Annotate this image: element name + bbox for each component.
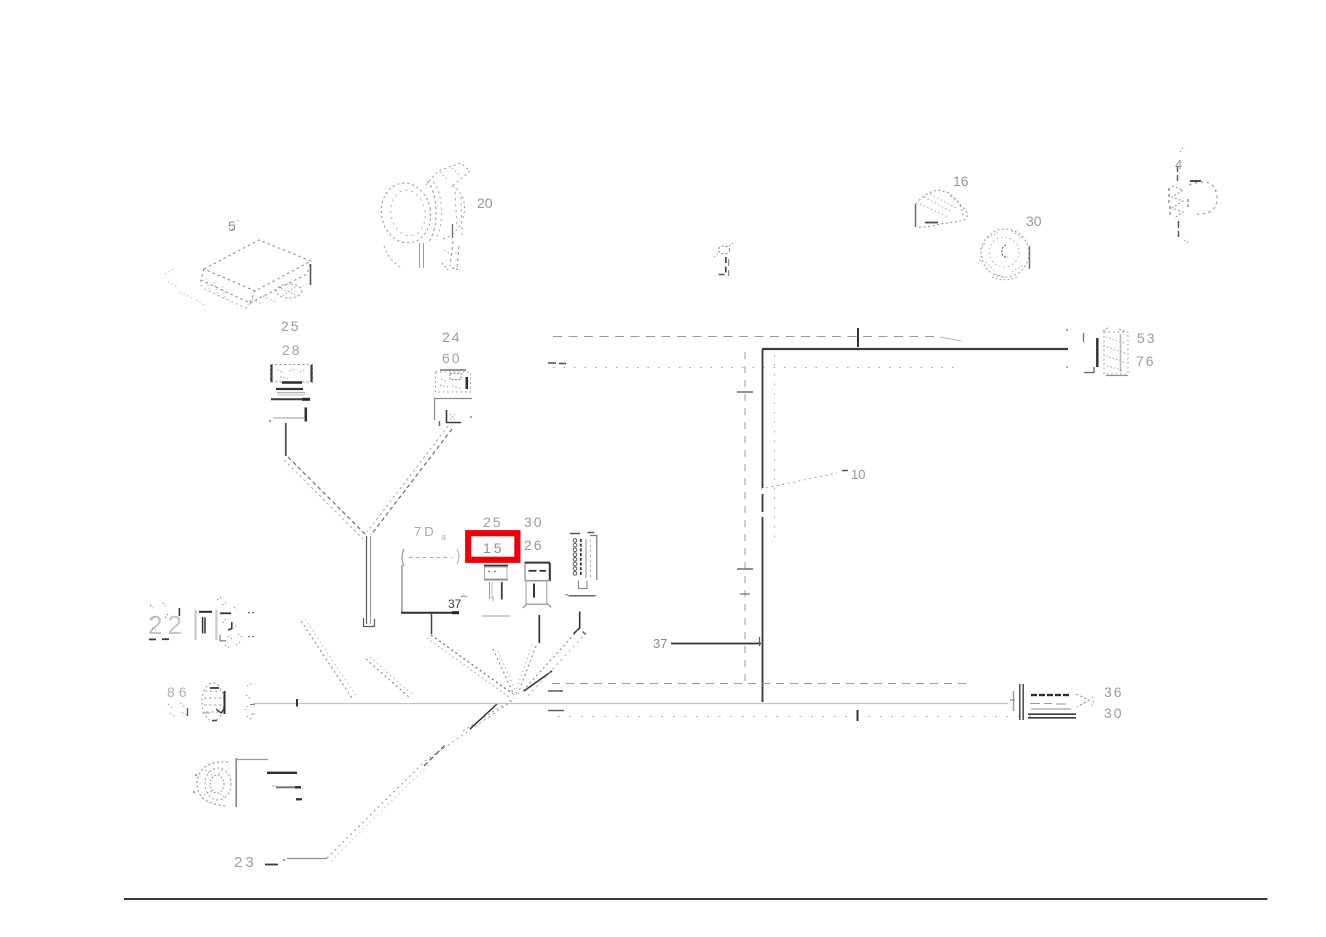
svg-text:4: 4 <box>1175 157 1182 172</box>
svg-text:37: 37 <box>448 597 462 611</box>
svg-text:a: a <box>441 532 446 542</box>
svg-text:60: 60 <box>442 350 462 366</box>
svg-text:10: 10 <box>851 467 865 482</box>
svg-text:28: 28 <box>282 342 302 358</box>
svg-text:30: 30 <box>1104 705 1124 721</box>
svg-text:53: 53 <box>1137 330 1157 346</box>
svg-text:26: 26 <box>524 537 544 553</box>
svg-text:20: 20 <box>477 195 493 211</box>
svg-text:30: 30 <box>524 514 544 530</box>
svg-text:86: 86 <box>167 684 191 700</box>
svg-text:37: 37 <box>653 636 667 651</box>
svg-text:36: 36 <box>1104 684 1124 700</box>
svg-text:76: 76 <box>1136 353 1156 369</box>
svg-text:7D: 7D <box>414 524 437 539</box>
svg-text:24: 24 <box>442 329 462 345</box>
svg-text:5: 5 <box>228 218 236 234</box>
svg-text:23: 23 <box>234 854 257 871</box>
svg-text:25: 25 <box>281 318 301 334</box>
svg-text:16: 16 <box>953 173 969 189</box>
svg-text:30: 30 <box>1026 213 1042 229</box>
svg-text:25: 25 <box>483 514 503 530</box>
svg-text:15: 15 <box>483 540 505 556</box>
